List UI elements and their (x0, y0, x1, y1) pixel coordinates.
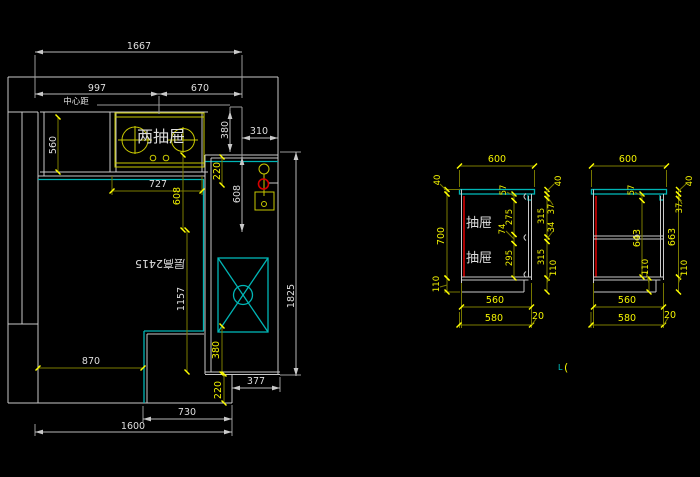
dim-gap-top: 220 (212, 162, 223, 180)
cab1-dim-rail-mid: 74 (498, 224, 508, 235)
cab1-dim-counter-left: 40 (433, 175, 443, 186)
cab2-dim-body-height: 663 (667, 228, 678, 246)
dim-bottom-left-run: 870 (82, 356, 100, 367)
cabinet-section-2: 600 57 643 663 40 37 110 110 560 580 20 (591, 154, 695, 328)
cabinet-section-1: 600 40 700 110 57 275 74 295 40 37 315 3… (432, 154, 564, 328)
cab2-dim-depth-body: 560 (618, 295, 636, 306)
drawer-rail-marks (524, 194, 526, 278)
dim-left-to-cooktop-center: 997 (88, 83, 106, 94)
cab1-dim-drawer-top: 275 (505, 209, 515, 225)
cab1-drawer-label-2: 抽屉 (466, 251, 492, 266)
cab2-dim-depth-counter: 580 (618, 313, 636, 324)
cab2-dim-toe-right: 110 (680, 260, 690, 276)
cab1-dim-depth-body: 560 (486, 295, 504, 306)
cab1-dim-toe-left: 110 (432, 276, 442, 292)
cab2-dim-counter: 40 (685, 176, 695, 187)
dim-cooktop-center-to-wall: 670 (191, 83, 209, 94)
marker-l-glyph: L (558, 363, 563, 372)
countertop-1 (460, 190, 535, 195)
dim-top-offset: 380 (220, 121, 231, 139)
cab1-dim-body-height: 700 (436, 227, 447, 245)
dim-bottom-right-run: 377 (247, 376, 265, 387)
floor-plan: 1667 997 670 中心距 560 380 310 220 727 608… (8, 41, 301, 436)
cab1-dim-toe-right: 110 (549, 260, 559, 276)
dim-right-counter-length: 1825 (286, 284, 297, 308)
cab1-dim-gap-top: 37 (547, 204, 557, 215)
marker-paren-glyph: ( (564, 361, 568, 374)
cab1-dim-depth-counter: 580 (485, 313, 503, 324)
cad-canvas: 1667 997 670 中心距 560 380 310 220 727 608… (0, 0, 700, 477)
cab1-dim-width-top: 600 (488, 154, 506, 165)
cab2-dim-door-height: 643 (632, 229, 643, 247)
cab1-dim-gap-mid: 34 (547, 222, 557, 233)
cab2-dim-overhang: 20 (664, 310, 676, 321)
cab1-dim-counter-right: 40 (554, 176, 564, 187)
top-counter (38, 105, 230, 331)
cab1-dim-overhang: 20 (532, 311, 544, 322)
cab2-dim-toe-inner: 110 (641, 259, 651, 275)
dim-gap-bottom: 220 (213, 381, 224, 399)
cab1-dim-front-top: 315 (537, 208, 547, 224)
cab2-dim-top-rail: 57 (627, 185, 637, 196)
cad-drawing: 1667 997 670 中心距 560 380 310 220 727 608… (0, 0, 700, 477)
scale-marker: L ( (558, 361, 568, 374)
cab1-dim-front-bottom: 315 (537, 249, 547, 265)
cooktop-drawers-label: 两抽屉 (137, 127, 185, 146)
dim-cooktop-run: 727 (149, 179, 167, 190)
dim-bottom-overall: 1600 (121, 421, 145, 432)
plan-dims-yellow (38, 117, 224, 403)
dim-overall-width: 1667 (127, 41, 151, 52)
cab1-dim-drawer-bottom: 295 (505, 250, 515, 266)
cab1-drawer-label-1: 抽屉 (466, 216, 492, 231)
gas-valve-fixture (255, 164, 274, 210)
dim-sink-to-front: 380 (211, 341, 222, 359)
dim-bottom-mid-run: 730 (178, 407, 196, 418)
center-distance-label: 中心距 (63, 96, 89, 107)
dim-center-drop-right: 608 (232, 185, 243, 203)
cab2-dim-gap-top: 37 (675, 203, 685, 214)
dim-center-drop-lower: 1157 (176, 287, 187, 311)
sink (218, 258, 268, 332)
dim-right-offset: 310 (250, 126, 268, 137)
cab1-dim-top-rail: 57 (499, 185, 509, 196)
ceiling-height-label: 层高2415 (135, 257, 185, 271)
dim-counter-depth: 560 (48, 136, 59, 154)
dim-center-drop-left: 608 (172, 187, 183, 205)
cab2-dim-width-top: 600 (619, 154, 637, 165)
